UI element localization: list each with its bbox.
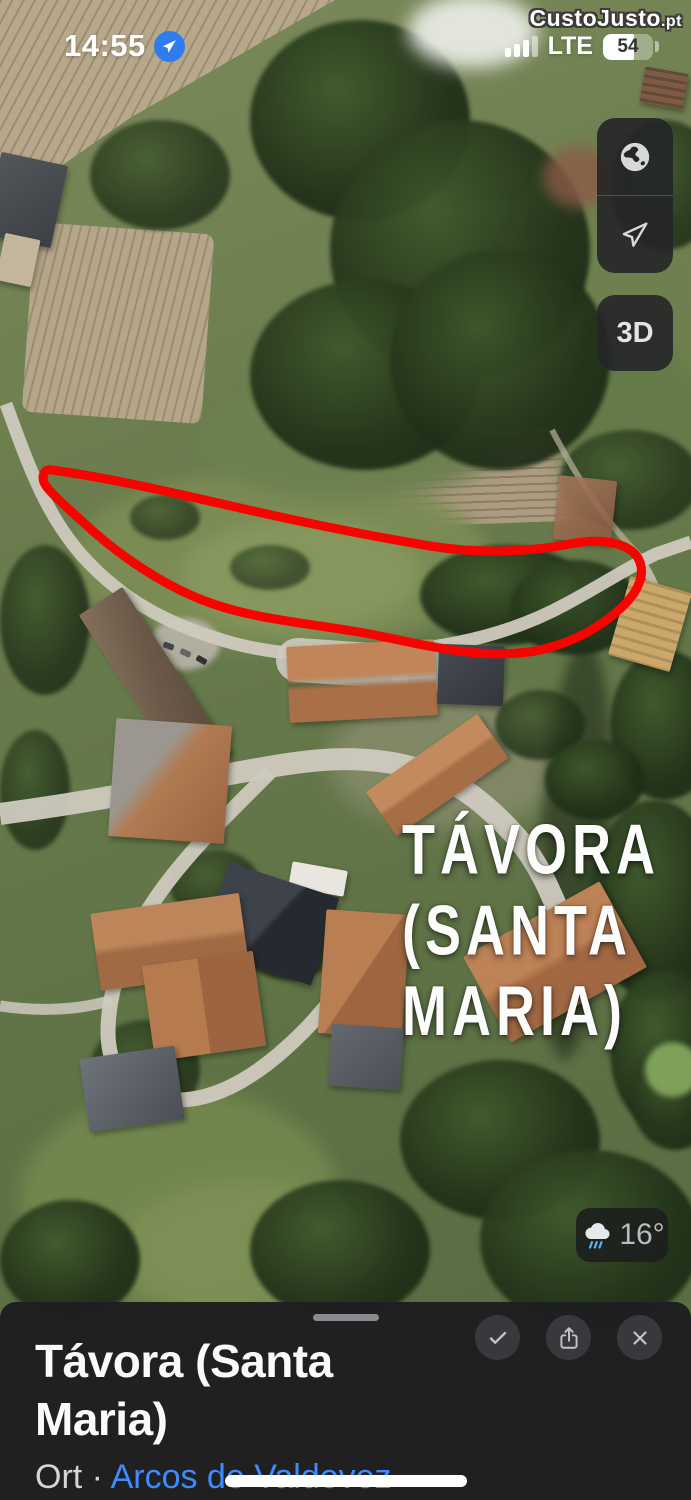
map-place-label: TÁVORA (SANTA MARIA) bbox=[402, 810, 660, 1052]
satellite-map[interactable]: TÁVORA (SANTA MARIA) 16° bbox=[0, 0, 691, 1500]
status-bar: 14:55 LTE 54 bbox=[0, 28, 691, 68]
place-label-line: MARIA) bbox=[402, 971, 660, 1052]
cellular-signal-icon bbox=[505, 36, 538, 57]
status-left: 14:55 bbox=[64, 28, 185, 64]
navigation-arrow-icon bbox=[619, 219, 651, 251]
place-label-line: (SANTA bbox=[402, 891, 660, 972]
weather-widget[interactable]: 16° bbox=[576, 1208, 668, 1262]
close-button[interactable] bbox=[617, 1315, 662, 1360]
property-outline-path bbox=[43, 470, 641, 654]
iphone-screen: TÁVORA (SANTA MARIA) 16° 14:55 bbox=[0, 0, 691, 1500]
rain-cloud-icon bbox=[579, 1216, 617, 1254]
locate-me-button[interactable] bbox=[597, 196, 673, 273]
location-services-icon bbox=[154, 31, 185, 62]
3d-mode-button[interactable]: 3D bbox=[597, 295, 673, 371]
3d-label: 3D bbox=[616, 317, 653, 350]
watermark: CustoJusto.pt bbox=[529, 5, 682, 32]
clock: 14:55 bbox=[64, 28, 146, 64]
network-type: LTE bbox=[548, 32, 593, 61]
place-category: Ort bbox=[35, 1458, 82, 1496]
watermark-tld: .pt bbox=[661, 13, 682, 30]
watermark-brand: CustoJusto bbox=[529, 5, 661, 31]
battery-icon: 54 bbox=[603, 34, 653, 60]
place-label-line: TÁVORA bbox=[402, 810, 660, 891]
battery-percent: 54 bbox=[603, 34, 653, 60]
confirm-button[interactable] bbox=[475, 1315, 520, 1360]
globe-icon bbox=[618, 140, 652, 174]
status-right: LTE 54 bbox=[505, 32, 659, 61]
temperature-value: 16° bbox=[619, 1218, 664, 1252]
place-title: Távora (Santa Maria) bbox=[35, 1332, 465, 1448]
property-outline bbox=[0, 0, 691, 1300]
map-style-button[interactable] bbox=[597, 118, 673, 195]
map-controls: 3D bbox=[597, 118, 673, 371]
share-button[interactable] bbox=[546, 1315, 591, 1360]
battery-cap bbox=[655, 41, 659, 52]
sheet-drag-handle[interactable] bbox=[313, 1314, 379, 1321]
sheet-actions bbox=[475, 1315, 662, 1360]
place-card-sheet: Távora (Santa Maria) Ort · Arcos de Vald… bbox=[0, 1302, 691, 1500]
map-control-stack bbox=[597, 118, 673, 273]
subtitle-separator: · bbox=[92, 1458, 111, 1496]
home-indicator[interactable] bbox=[225, 1475, 467, 1487]
